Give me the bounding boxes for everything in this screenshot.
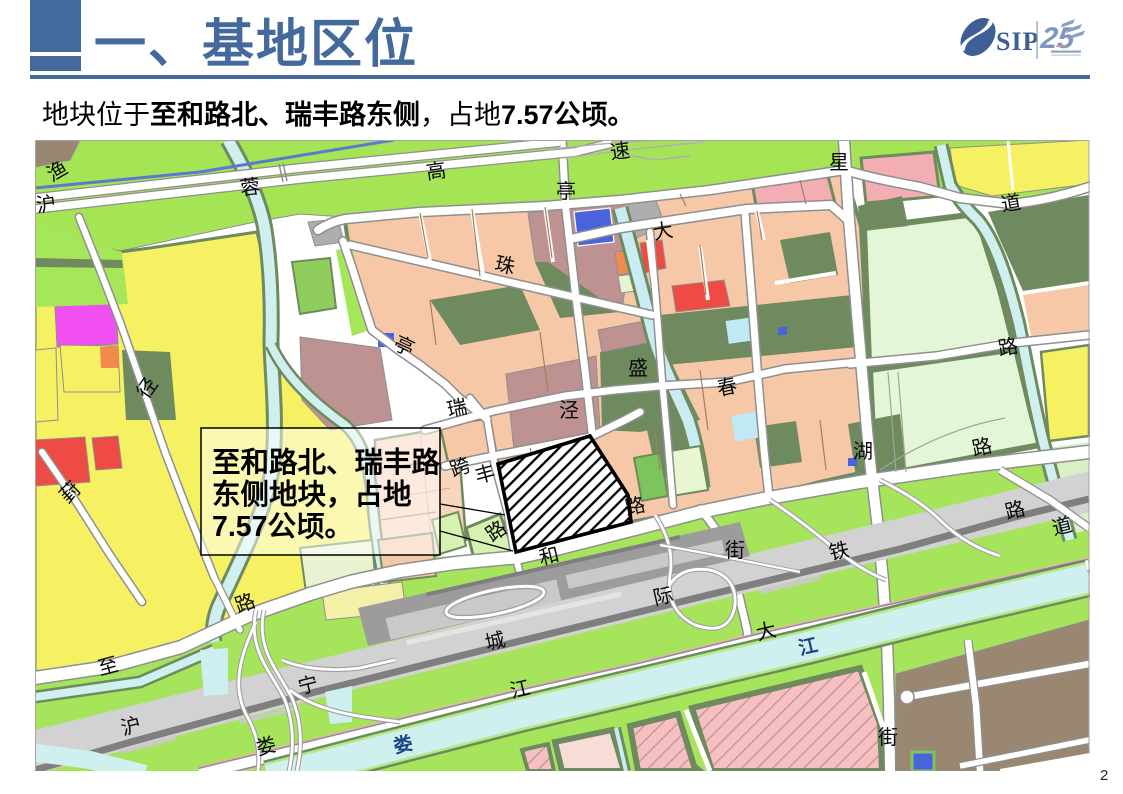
svg-text:路: 路 xyxy=(996,334,1020,360)
svg-text:高: 高 xyxy=(425,159,448,185)
svg-text:7.57公顷。: 7.57公顷。 xyxy=(212,511,353,543)
svg-text:蓉: 蓉 xyxy=(239,175,262,201)
svg-text:盛: 盛 xyxy=(628,357,648,380)
svg-text:道: 道 xyxy=(999,190,1023,216)
svg-text:街: 街 xyxy=(878,726,898,749)
svg-text:沪: 沪 xyxy=(35,192,58,218)
svg-text:街: 街 xyxy=(725,539,745,562)
svg-text:大: 大 xyxy=(651,218,675,244)
svg-text:亭: 亭 xyxy=(556,180,576,203)
svg-text:25: 25 xyxy=(1038,22,1077,55)
svg-text:SIP: SIP xyxy=(996,27,1039,56)
svg-text:泾: 泾 xyxy=(559,399,579,422)
svg-text:湖: 湖 xyxy=(853,440,873,463)
svg-text:东侧地块，占地: 东侧地块，占地 xyxy=(212,478,412,511)
svg-text:至和路北、瑞丰路: 至和路北、瑞丰路 xyxy=(212,447,441,479)
svg-text:速: 速 xyxy=(609,140,632,164)
svg-text:星: 星 xyxy=(829,152,849,174)
